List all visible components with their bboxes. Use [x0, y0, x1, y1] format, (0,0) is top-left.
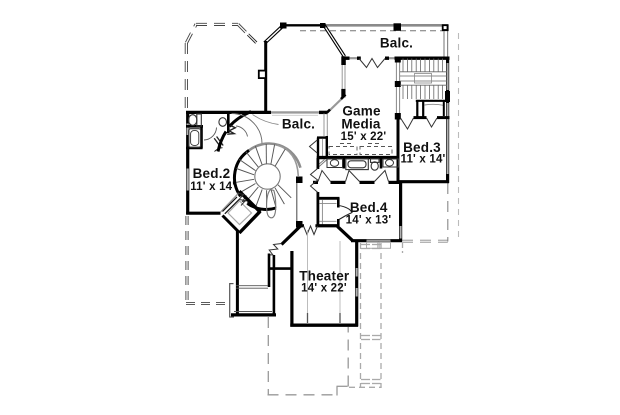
svg-text:14' x 13': 14' x 13' — [346, 215, 392, 227]
svg-text:14' x 22': 14' x 22' — [301, 283, 347, 295]
svg-text:11' x 14': 11' x 14' — [400, 154, 445, 166]
svg-text:Balc.: Balc. — [282, 117, 315, 132]
svg-text:Bed.4: Bed.4 — [350, 200, 388, 215]
svg-text:15' x 22': 15' x 22' — [341, 131, 387, 143]
svg-text:Bed.2: Bed.2 — [193, 166, 231, 181]
svg-text:Balc.: Balc. — [380, 36, 413, 51]
svg-text:Theater: Theater — [299, 269, 350, 284]
svg-text:Media: Media — [341, 117, 381, 132]
svg-text:11' x 14': 11' x 14' — [190, 181, 235, 193]
